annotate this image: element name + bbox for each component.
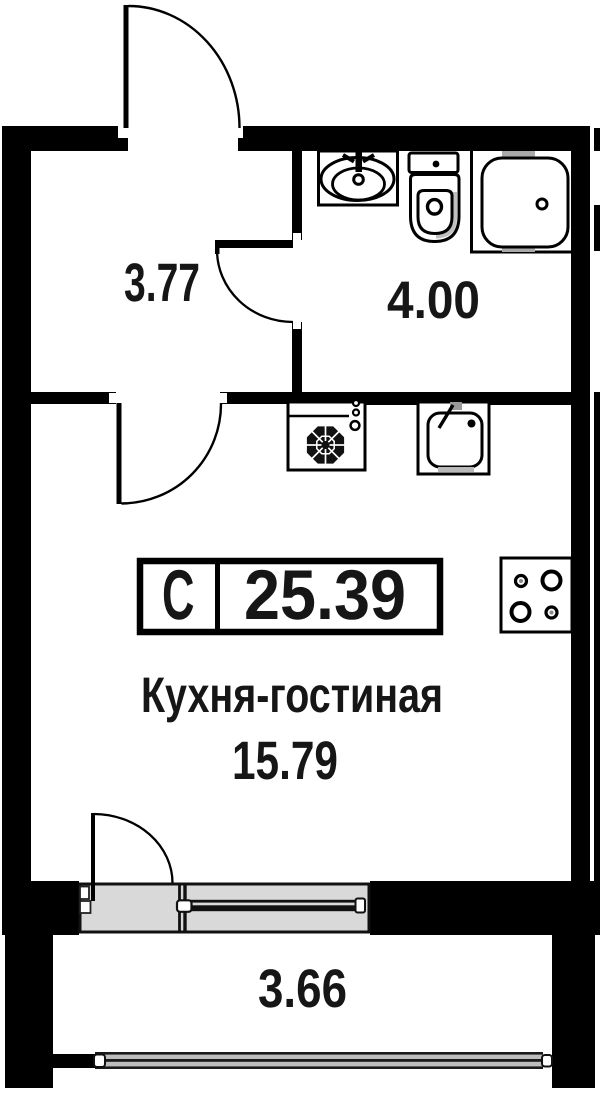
svg-text:3.77: 3.77: [124, 253, 200, 313]
svg-text:4.00: 4.00: [387, 271, 480, 330]
svg-text:Кухня-гостиная: Кухня-гостиная: [141, 667, 443, 723]
svg-text:15.79: 15.79: [232, 731, 338, 791]
svg-text:С: С: [162, 555, 195, 634]
svg-text:25.39: 25.39: [244, 555, 406, 634]
svg-text:3.66: 3.66: [258, 959, 347, 1019]
